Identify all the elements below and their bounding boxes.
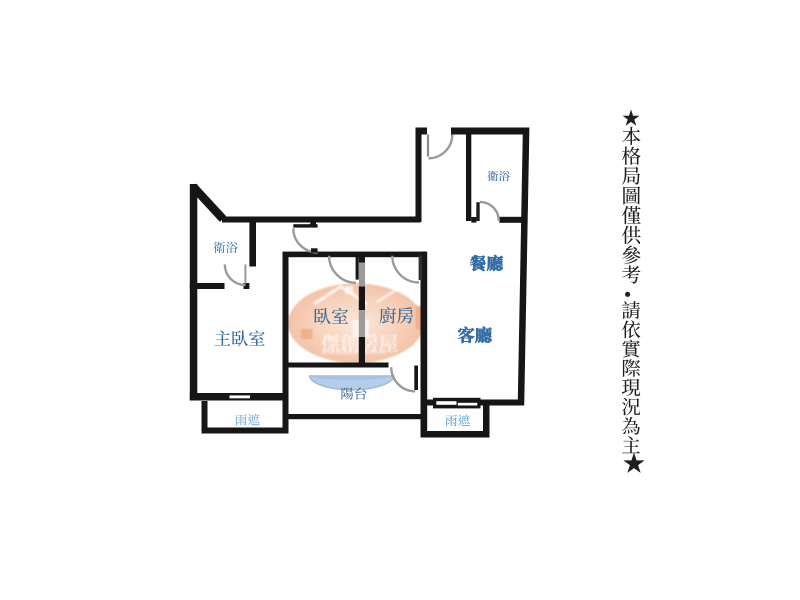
- svg-text:EXCELLENT AGAIN: EXCELLENT AGAIN: [322, 349, 386, 356]
